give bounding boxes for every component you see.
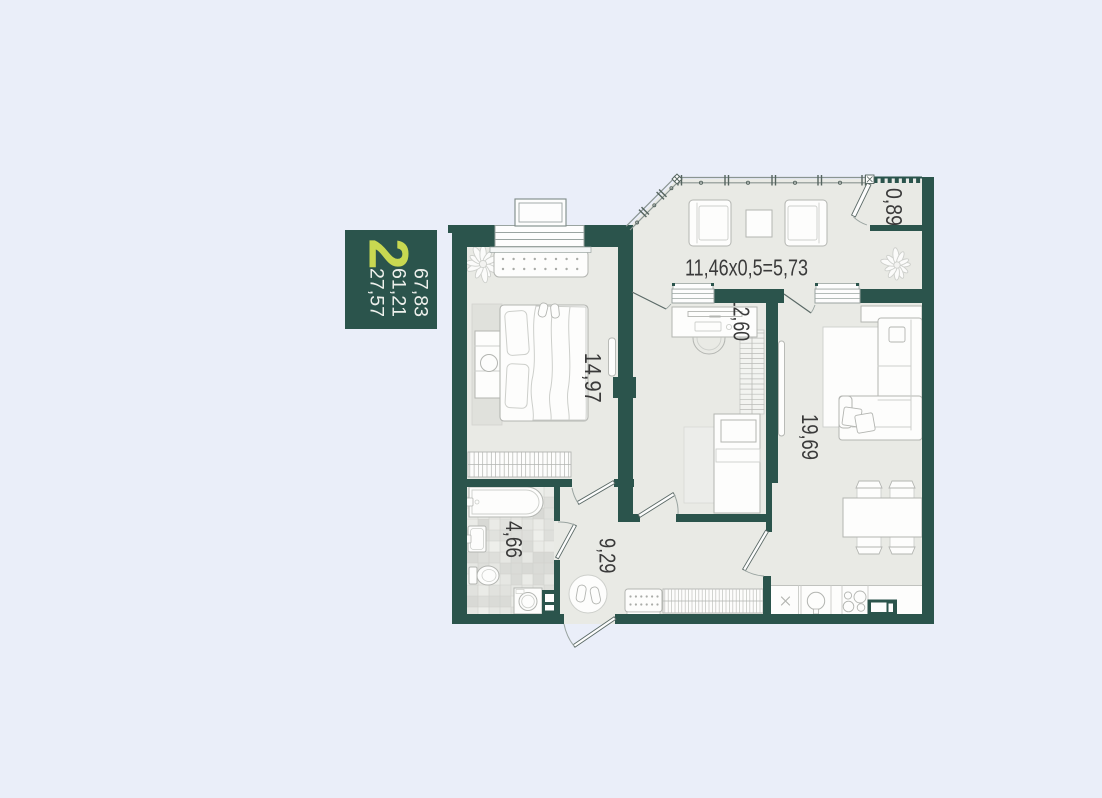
svg-text:2: 2: [358, 238, 421, 269]
svg-text:4,66: 4,66: [501, 521, 527, 558]
svg-text:9,29: 9,29: [595, 538, 621, 574]
svg-text:19,69: 19,69: [797, 414, 823, 460]
svg-text:67,83: 67,83: [410, 268, 431, 317]
svg-text:12,60: 12,60: [729, 297, 755, 341]
svg-text:11,46x0,5=5,73: 11,46x0,5=5,73: [685, 255, 808, 281]
svg-text:27,57: 27,57: [366, 268, 387, 317]
svg-text:14,97: 14,97: [580, 353, 606, 403]
svg-text:61,21: 61,21: [388, 268, 409, 317]
svg-text:0,89: 0,89: [881, 188, 907, 226]
